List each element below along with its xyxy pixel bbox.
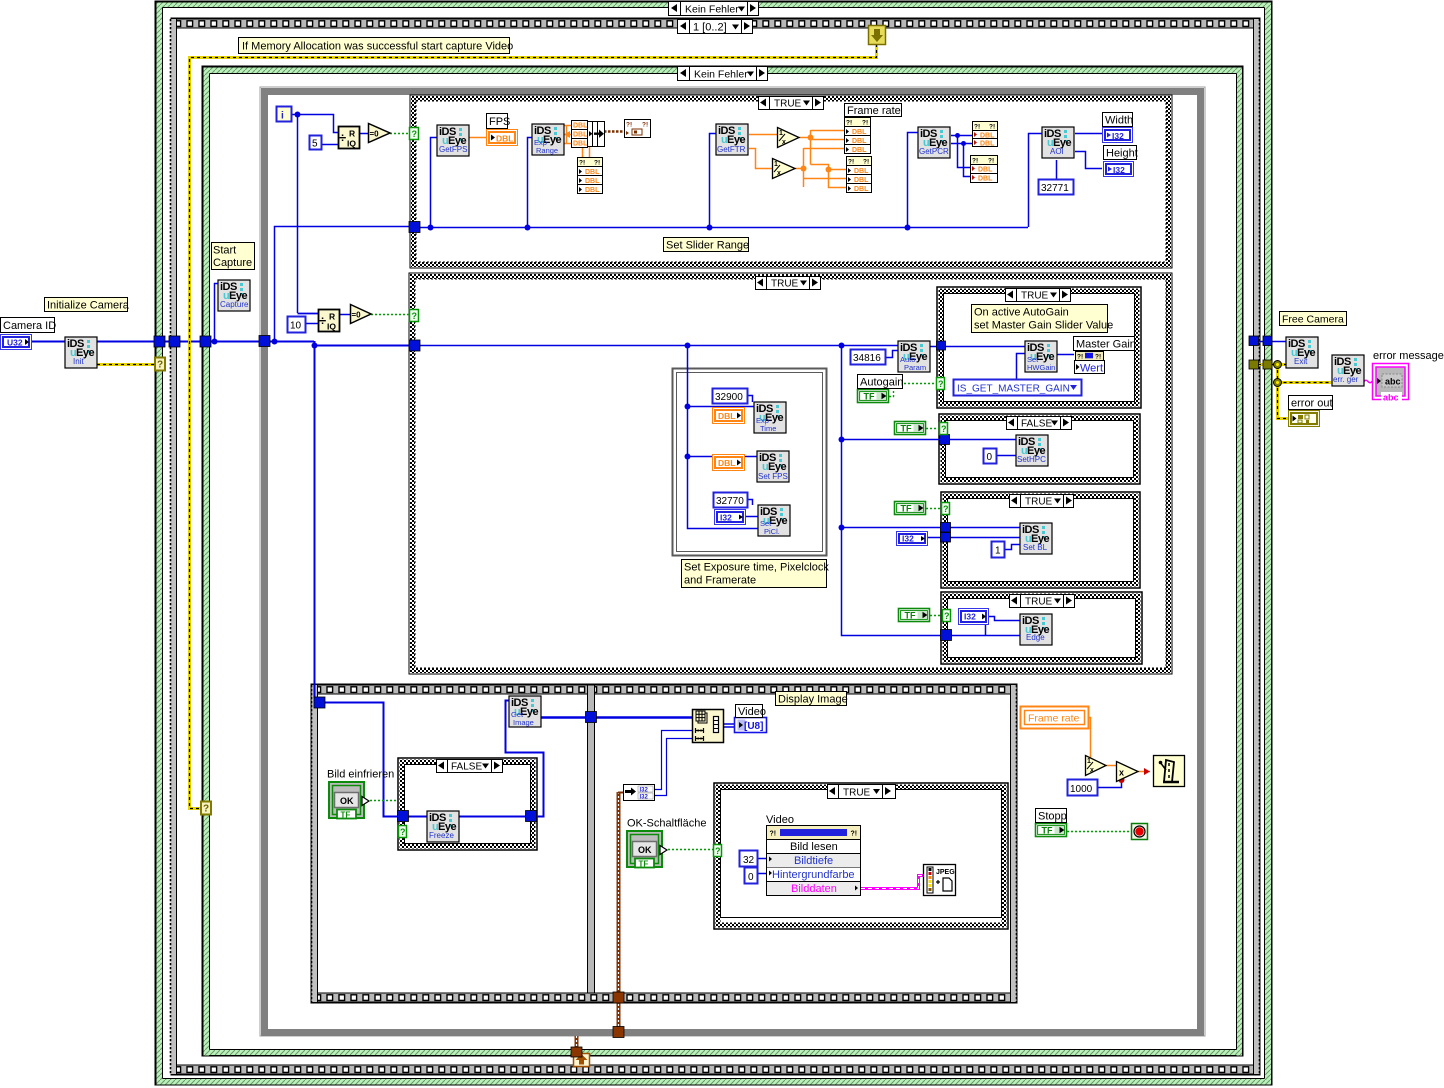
svg-text:Set FPS: Set FPS bbox=[758, 472, 788, 481]
svg-text:DBL: DBL bbox=[585, 187, 600, 194]
svg-text:Param: Param bbox=[904, 363, 926, 372]
svg-text:TRUE: TRUE bbox=[1025, 597, 1053, 608]
svg-text:x: x bbox=[777, 170, 781, 177]
svg-text:Range: Range bbox=[536, 146, 558, 155]
svg-text:1: 1 bbox=[995, 546, 1001, 557]
svg-text:I32: I32 bbox=[964, 612, 976, 622]
svg-text:IQ: IQ bbox=[327, 322, 336, 332]
svg-text:GetPCR: GetPCR bbox=[919, 147, 949, 156]
svg-text:?!: ?! bbox=[642, 122, 648, 129]
svg-text:Bildtiefe: Bildtiefe bbox=[794, 855, 833, 867]
svg-text:abc: abc bbox=[1385, 377, 1401, 387]
svg-text:Edge: Edge bbox=[1026, 633, 1045, 642]
svg-text:?!: ?! bbox=[579, 160, 585, 167]
svg-text:Camera ID: Camera ID bbox=[3, 320, 56, 332]
svg-text:Capture: Capture bbox=[213, 257, 252, 269]
svg-text:?: ? bbox=[400, 827, 406, 837]
svg-text:GetFPS: GetFPS bbox=[439, 145, 467, 154]
svg-text:PiCl.: PiCl. bbox=[764, 527, 780, 536]
svg-text:÷: ÷ bbox=[319, 313, 326, 328]
svg-text:?!: ?! bbox=[848, 159, 854, 166]
svg-text:DBL: DBL bbox=[585, 169, 600, 176]
svg-text:32900: 32900 bbox=[715, 392, 743, 403]
svg-text:?: ? bbox=[943, 504, 949, 514]
svg-text:Height: Height bbox=[1106, 148, 1138, 160]
svg-text:DBL: DBL bbox=[573, 132, 588, 139]
svg-text:x: x bbox=[782, 139, 786, 146]
svg-text:Bild einfrieren: Bild einfrieren bbox=[327, 769, 394, 781]
svg-text:10: 10 bbox=[290, 321, 302, 332]
svg-text:?!: ?! bbox=[1095, 354, 1101, 361]
svg-text:I32: I32 bbox=[640, 795, 649, 801]
svg-text:HWGain: HWGain bbox=[1027, 363, 1055, 372]
svg-text:abc: abc bbox=[1383, 393, 1399, 403]
svg-text:err. ger: err. ger bbox=[1333, 375, 1359, 384]
svg-text:34816: 34816 bbox=[853, 353, 881, 364]
svg-text:Capture: Capture bbox=[220, 300, 249, 309]
svg-text:Autogain: Autogain bbox=[860, 377, 903, 389]
svg-text:DBL: DBL bbox=[980, 133, 995, 140]
svg-text:Frame rate: Frame rate bbox=[1028, 713, 1080, 725]
svg-text:U32: U32 bbox=[7, 338, 23, 348]
svg-text:SetHPC: SetHPC bbox=[1017, 455, 1046, 464]
svg-text:AOI: AOI bbox=[1050, 147, 1064, 156]
svg-text:?!: ?! bbox=[974, 124, 980, 131]
svg-text:JPEG: JPEG bbox=[936, 869, 955, 876]
svg-text:1000: 1000 bbox=[1070, 784, 1093, 795]
svg-text:Kein Fehler: Kein Fehler bbox=[685, 4, 739, 16]
svg-text:Set Slider Range: Set Slider Range bbox=[666, 240, 749, 252]
svg-text:?!: ?! bbox=[594, 160, 600, 167]
svg-text:I32: I32 bbox=[1113, 165, 1125, 175]
svg-text:DBL: DBL bbox=[978, 167, 993, 174]
svg-text:?: ? bbox=[941, 424, 947, 434]
svg-text:Bild lesen: Bild lesen bbox=[790, 841, 838, 853]
svg-text:x: x bbox=[1090, 767, 1094, 774]
svg-text:R: R bbox=[349, 129, 355, 139]
svg-text:I32: I32 bbox=[640, 788, 649, 794]
svg-text:DBL: DBL bbox=[978, 176, 993, 183]
svg-text:?!: ?! bbox=[1077, 354, 1083, 361]
svg-text:?!: ?! bbox=[988, 158, 994, 165]
svg-text:DBL: DBL bbox=[573, 123, 588, 130]
svg-text:If Memory Allocation was succe: If Memory Allocation was successful star… bbox=[242, 41, 513, 53]
svg-text:x: x bbox=[1119, 768, 1124, 778]
svg-text:?!: ?! bbox=[862, 120, 868, 127]
svg-text:TRUE: TRUE bbox=[1021, 291, 1049, 302]
svg-text:Hintergrundfarbe: Hintergrundfarbe bbox=[772, 869, 855, 881]
svg-text:I32: I32 bbox=[1112, 131, 1124, 141]
svg-text:?!: ?! bbox=[846, 120, 852, 127]
svg-text:DBL: DBL bbox=[854, 177, 869, 184]
svg-text:=0: =0 bbox=[370, 130, 380, 139]
svg-text:FPS: FPS bbox=[489, 116, 510, 128]
svg-text:DBL: DBL bbox=[854, 186, 869, 193]
svg-text:DBL: DBL bbox=[573, 141, 588, 148]
svg-text:÷: ÷ bbox=[339, 130, 346, 145]
svg-text:Freeze: Freeze bbox=[429, 831, 454, 840]
svg-text:R: R bbox=[329, 312, 335, 322]
svg-text:error message: error message bbox=[1373, 350, 1444, 362]
svg-text:32771: 32771 bbox=[1041, 183, 1069, 194]
svg-text:Master Gain: Master Gain bbox=[1076, 339, 1136, 351]
svg-text:?: ? bbox=[715, 846, 721, 856]
svg-text:DBL: DBL bbox=[718, 458, 735, 468]
svg-text:DBL: DBL bbox=[585, 178, 600, 185]
svg-text:Initialize Camera: Initialize Camera bbox=[47, 300, 130, 312]
svg-text:OK-Schaltfläche: OK-Schaltfläche bbox=[627, 818, 706, 830]
svg-text:Video: Video bbox=[738, 706, 766, 718]
svg-text:32770: 32770 bbox=[716, 496, 744, 507]
svg-text:Stopp: Stopp bbox=[1038, 811, 1067, 823]
svg-text:DBL: DBL bbox=[496, 134, 513, 144]
svg-text:32: 32 bbox=[743, 855, 755, 866]
svg-text:Set Exposure time, Pixelclock: Set Exposure time, Pixelclock bbox=[684, 562, 829, 574]
svg-text:=0: =0 bbox=[352, 311, 362, 320]
svg-text:TRUE: TRUE bbox=[774, 99, 802, 110]
svg-text:1: 1 bbox=[1087, 758, 1091, 765]
svg-text:1 [0..2]: 1 [0..2] bbox=[693, 22, 727, 34]
svg-text:TRUE: TRUE bbox=[771, 279, 799, 290]
svg-text:?!: ?! bbox=[851, 831, 858, 838]
svg-text:Display Image: Display Image bbox=[778, 694, 848, 706]
svg-text:Set BL: Set BL bbox=[1023, 543, 1048, 552]
svg-text:[U8]: [U8] bbox=[744, 721, 763, 732]
svg-text:Wert: Wert bbox=[1080, 363, 1103, 375]
svg-text:1: 1 bbox=[779, 130, 783, 137]
svg-text:Start: Start bbox=[213, 245, 236, 257]
svg-text:?: ? bbox=[157, 360, 163, 371]
svg-text:?!: ?! bbox=[626, 122, 632, 129]
svg-text:Bilddaten: Bilddaten bbox=[791, 883, 837, 895]
svg-text:and Framerate: and Framerate bbox=[684, 575, 756, 587]
svg-text:?: ? bbox=[203, 804, 209, 815]
svg-text:?!: ?! bbox=[863, 159, 869, 166]
svg-text:DBL: DBL bbox=[718, 411, 735, 421]
svg-text:i: i bbox=[281, 111, 284, 122]
svg-text:Width: Width bbox=[1105, 115, 1133, 127]
svg-text:1: 1 bbox=[774, 161, 778, 168]
svg-text:GetFTR: GetFTR bbox=[717, 145, 746, 154]
svg-text:0: 0 bbox=[987, 452, 993, 463]
svg-text:IS_GET_MASTER_GAIN: IS_GET_MASTER_GAIN bbox=[957, 384, 1070, 395]
svg-text:error out: error out bbox=[1291, 398, 1333, 410]
svg-text:Frame rate: Frame rate bbox=[847, 105, 901, 117]
svg-text:DBL: DBL bbox=[852, 147, 867, 154]
svg-text:TRUE: TRUE bbox=[843, 788, 871, 799]
svg-text:DBL: DBL bbox=[852, 138, 867, 145]
svg-text:DBL: DBL bbox=[852, 129, 867, 136]
svg-text:Image: Image bbox=[513, 718, 534, 727]
svg-text:?: ? bbox=[944, 611, 950, 621]
svg-text:Kein Fehler: Kein Fehler bbox=[694, 69, 748, 81]
svg-text:FALSE: FALSE bbox=[451, 762, 482, 773]
svg-text:?!: ?! bbox=[770, 831, 777, 838]
svg-text:Exit: Exit bbox=[1294, 357, 1308, 366]
svg-text:IQ: IQ bbox=[347, 139, 356, 149]
svg-text:DBL: DBL bbox=[854, 168, 869, 175]
svg-text:I32: I32 bbox=[720, 513, 732, 523]
svg-text:I32: I32 bbox=[902, 534, 914, 544]
svg-text:?: ? bbox=[938, 379, 944, 389]
svg-text:?: ? bbox=[412, 311, 418, 321]
svg-text:0: 0 bbox=[748, 872, 754, 883]
svg-text:DBL: DBL bbox=[980, 141, 995, 148]
svg-text:?: ? bbox=[412, 129, 418, 139]
svg-text:?!: ?! bbox=[972, 158, 978, 165]
svg-text:Video: Video bbox=[766, 814, 794, 826]
svg-text:On active AutoGain: On active AutoGain bbox=[974, 307, 1069, 319]
svg-text:Free Camera: Free Camera bbox=[1282, 314, 1344, 326]
svg-text:5: 5 bbox=[312, 139, 318, 150]
svg-text:?!: ?! bbox=[989, 124, 995, 131]
svg-text:TRUE: TRUE bbox=[1025, 497, 1053, 508]
svg-text:FALSE: FALSE bbox=[1021, 419, 1052, 430]
svg-text:Init: Init bbox=[73, 357, 84, 366]
svg-text:Time: Time bbox=[760, 424, 776, 433]
svg-text:set Master Gain Slider Value: set Master Gain Slider Value bbox=[974, 320, 1113, 332]
